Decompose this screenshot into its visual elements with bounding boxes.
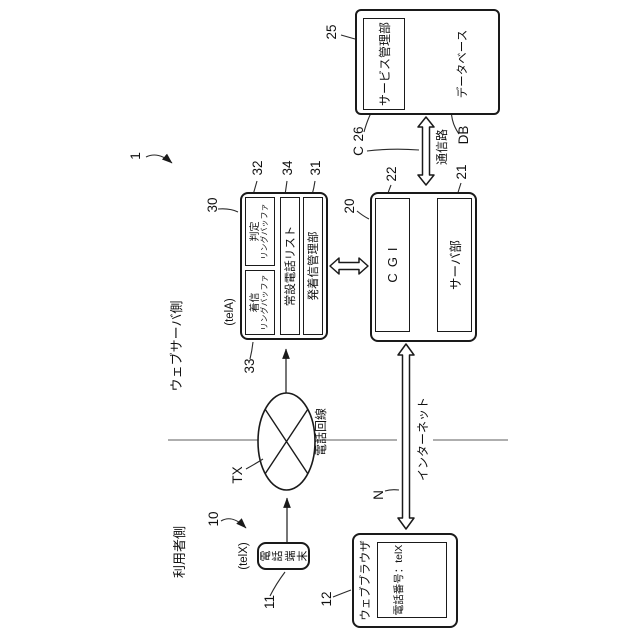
diagram-stage: 1 利用者側 ウェブサーバ側 10 (telX) 電話端末 11 12 ウェブブ… <box>0 0 640 640</box>
database-label: データベース <box>454 28 470 100</box>
web-server-side-label: ウェブサーバ側 <box>166 290 185 402</box>
leader-20 <box>357 211 369 219</box>
judge-buffer-type: リングバッファ <box>261 204 269 260</box>
arrow-channel <box>418 117 434 185</box>
call-manager-cell: 発着信管理部 <box>303 197 323 335</box>
arrow-internet <box>398 344 414 529</box>
incoming-buffer-type: リングバッファ <box>261 275 269 331</box>
ref-db: DB <box>456 122 471 148</box>
leader-fig1 <box>146 155 172 163</box>
ref-21: 21 <box>454 160 469 184</box>
phone-line-label: 電話回線 <box>312 405 329 459</box>
ref-22: 22 <box>384 162 399 186</box>
ref-11: 11 <box>262 591 277 613</box>
telephone-line-symbol <box>258 393 315 490</box>
browser-title: ウェブブラウザ <box>357 535 373 626</box>
ref-n: N <box>371 487 386 503</box>
leader-12 <box>333 590 351 597</box>
service-manager-cell: サービス管理部 <box>363 18 405 110</box>
ref-10: 10 <box>206 508 221 530</box>
ref-30: 30 <box>205 193 220 217</box>
leader-10 <box>221 519 246 528</box>
ref-34: 34 <box>280 156 295 180</box>
telx-id-label: (telX) <box>238 536 250 576</box>
browser-phone-field: 電話番号：telX <box>391 544 406 616</box>
phone-terminal-label: 電話端末 <box>260 549 309 563</box>
leader-c <box>367 149 419 151</box>
user-side-label: 利用者側 <box>169 526 188 578</box>
ref-26: 26 <box>351 122 366 146</box>
ref-25: 25 <box>324 20 339 44</box>
ref-31: 31 <box>308 156 323 180</box>
server-part-cell: サーバ部 <box>437 198 472 332</box>
ref-12: 12 <box>319 588 334 610</box>
ref-20: 20 <box>342 194 357 218</box>
ref-tx: TX <box>230 462 245 488</box>
internet-label: インターネット <box>414 394 431 484</box>
ref-32: 32 <box>250 156 265 180</box>
leader-30 <box>218 209 238 212</box>
figure-number: 1 <box>127 149 143 163</box>
leader-25 <box>341 35 355 39</box>
permanent-phone-list-cell: 常設電話リスト <box>280 197 300 335</box>
cgi-cell: CGI <box>375 198 410 332</box>
arrow-callserver-webserver <box>330 258 368 274</box>
patent-figure-sheet: 1 利用者側 ウェブサーバ側 10 (telX) 電話端末 11 12 ウェブブ… <box>0 0 640 640</box>
tela-id-label: (telA) <box>224 292 236 332</box>
ref-c: C <box>351 144 366 158</box>
channel-label: 通信路 <box>433 123 450 171</box>
incoming-ring-buffer-cell: 着信 リングバッファ <box>245 270 275 335</box>
leader-n <box>385 490 399 491</box>
browser-page-box <box>377 542 447 618</box>
ref-33: 33 <box>242 354 257 378</box>
judge-ring-buffer-cell: 判定 リングバッファ <box>245 197 275 266</box>
